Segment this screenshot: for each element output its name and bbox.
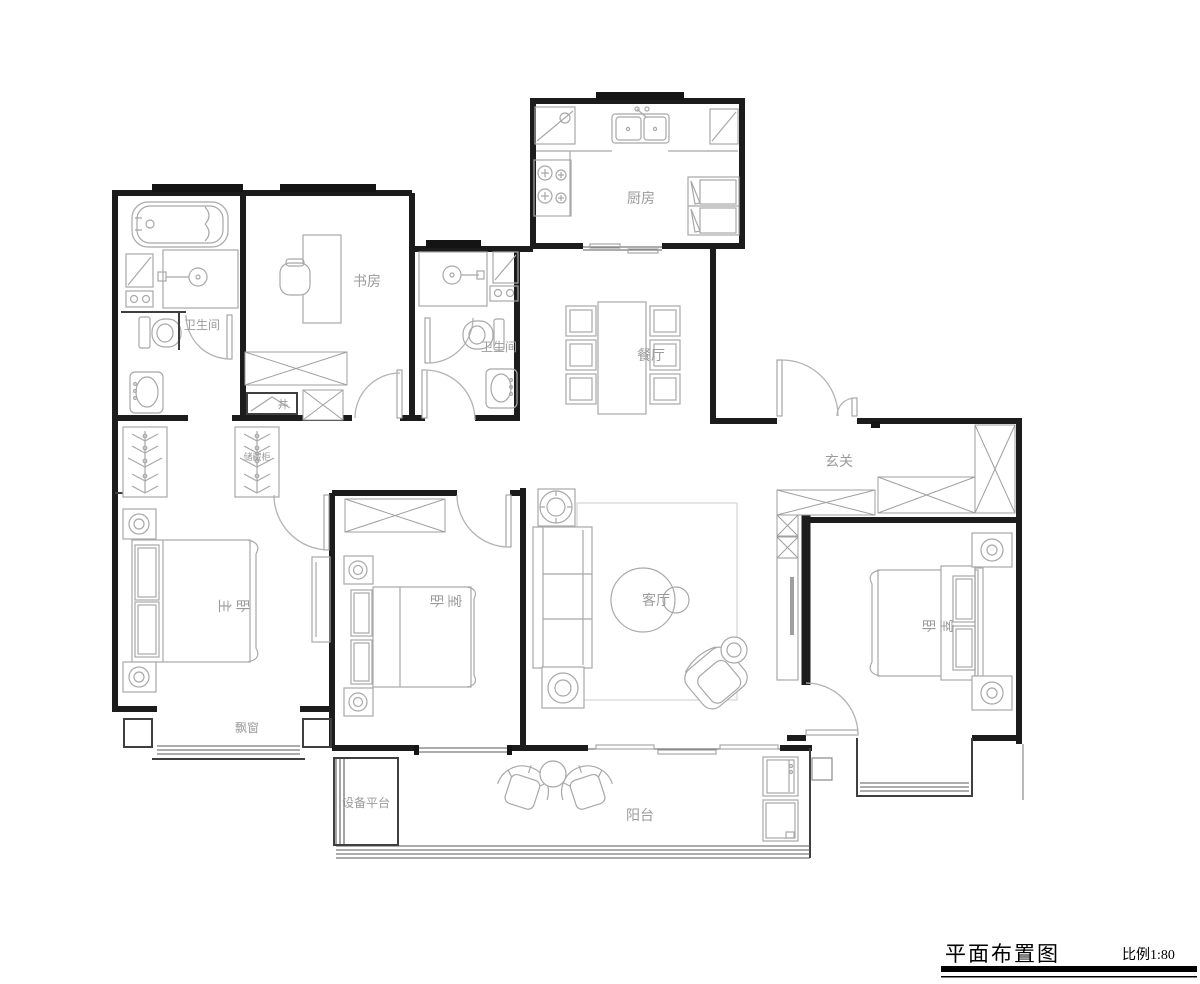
title-block: 平面布置图 比例1:80 bbox=[941, 942, 1197, 978]
floor-plan-page: 厨房 餐厅 书房 卫生间 卫生间 井 玄关 客厅 飘窗 设备平台 阳台 储藏柜 … bbox=[0, 0, 1200, 984]
balcony-step bbox=[812, 758, 832, 780]
label-bay-window: 飘窗 bbox=[235, 721, 259, 735]
corner-cabinet bbox=[535, 107, 575, 144]
svg-text:室: 室 bbox=[938, 619, 955, 633]
corner-shelf bbox=[710, 109, 738, 144]
door-study bbox=[355, 370, 402, 418]
nightstand bbox=[123, 509, 156, 539]
wardrobe-2 bbox=[235, 427, 279, 497]
window-bedroom2-south bbox=[414, 745, 512, 755]
title-rule-thin bbox=[941, 976, 1197, 978]
hall-cabinet bbox=[303, 390, 343, 420]
side-table bbox=[538, 489, 575, 526]
window-bath2 bbox=[426, 240, 481, 248]
wardrobe-1 bbox=[123, 427, 167, 497]
sink bbox=[486, 369, 517, 408]
balcony-items bbox=[334, 757, 832, 845]
nightstand bbox=[344, 688, 373, 716]
chair bbox=[280, 263, 310, 295]
bay-window-bedroom-right bbox=[857, 738, 972, 797]
soap-box bbox=[490, 286, 518, 301]
door-bedroom-right bbox=[806, 683, 858, 735]
nightstand bbox=[972, 533, 1012, 567]
door-bedroom2 bbox=[457, 495, 511, 547]
svg-text:室: 室 bbox=[446, 594, 463, 608]
nightstand bbox=[344, 556, 373, 584]
label-shaft: 井 bbox=[278, 397, 289, 411]
washer-dryer bbox=[763, 757, 798, 841]
tv-cabinet-master bbox=[312, 557, 330, 642]
kitchen-opening bbox=[583, 244, 662, 253]
window-kitchen bbox=[596, 92, 684, 100]
master-wardrobes bbox=[123, 427, 279, 497]
svg-text:卧: 卧 bbox=[234, 599, 250, 613]
shaft-box bbox=[247, 393, 297, 414]
side-table bbox=[542, 667, 584, 708]
label-storage-cabinet: 储藏柜 bbox=[243, 451, 270, 462]
nightstand bbox=[123, 662, 156, 692]
sofa bbox=[533, 527, 592, 668]
soap-box bbox=[126, 291, 153, 307]
label-bedroom-middle: 卧 bbox=[428, 594, 444, 608]
door-master bbox=[274, 495, 329, 550]
balcony-railing bbox=[336, 846, 810, 858]
door-bath2-inner bbox=[425, 318, 473, 363]
corner-shelf bbox=[126, 254, 153, 287]
small-cabinets bbox=[777, 515, 798, 558]
label-kitchen: 厨房 bbox=[627, 191, 655, 207]
kitchen-sink bbox=[612, 107, 669, 143]
label-balcony: 阳台 bbox=[626, 808, 654, 824]
nightstand bbox=[972, 676, 1012, 710]
door-entry-double bbox=[777, 360, 857, 416]
shower bbox=[419, 252, 487, 306]
bathroom-second-fixtures bbox=[419, 252, 518, 408]
label-master-bedroom: 主 bbox=[216, 599, 232, 613]
tv-cabinet-living bbox=[777, 558, 798, 680]
bathtub bbox=[132, 202, 228, 247]
window-bath1 bbox=[152, 184, 243, 192]
toilet bbox=[139, 317, 181, 348]
door-bath2-vestibule bbox=[422, 370, 475, 420]
plant-table bbox=[721, 637, 747, 663]
label-bedroom-right: 卧 bbox=[920, 619, 936, 633]
kitchen-fixtures bbox=[534, 107, 739, 235]
shoe-cabinet bbox=[777, 490, 875, 515]
windows bbox=[124, 92, 972, 858]
label-bathroom-main: 卫生间 bbox=[184, 318, 220, 332]
window-study bbox=[280, 184, 376, 192]
label-equipment-platform: 设备平台 bbox=[342, 795, 390, 810]
shower bbox=[158, 250, 238, 308]
sliding-door-living bbox=[588, 745, 780, 754]
l-wardrobe bbox=[878, 425, 1015, 513]
floor-plan-drawing: 厨房 餐厅 书房 卫生间 卫生间 井 玄关 客厅 飘窗 设备平台 阳台 储藏柜 … bbox=[0, 0, 1200, 984]
study-closet bbox=[245, 352, 347, 385]
label-entry: 玄关 bbox=[825, 453, 853, 470]
label-study: 书房 bbox=[353, 274, 381, 290]
balcony-table bbox=[540, 761, 566, 787]
study-furniture bbox=[245, 235, 347, 420]
drawing-scale: 比例1:80 bbox=[1122, 947, 1175, 963]
wardrobe-bedroom2 bbox=[345, 499, 445, 532]
label-bathroom-second: 卫生间 bbox=[481, 340, 517, 354]
sink bbox=[130, 372, 163, 413]
title-rule-thick bbox=[941, 966, 1197, 972]
label-dining: 餐厅 bbox=[637, 348, 665, 364]
fridge bbox=[688, 177, 739, 235]
bay-window-master bbox=[124, 719, 331, 759]
stove bbox=[534, 160, 571, 216]
drawing-title: 平面布置图 bbox=[945, 942, 1060, 966]
bathroom-main-fixtures bbox=[121, 202, 238, 413]
label-living: 客厅 bbox=[642, 592, 670, 609]
